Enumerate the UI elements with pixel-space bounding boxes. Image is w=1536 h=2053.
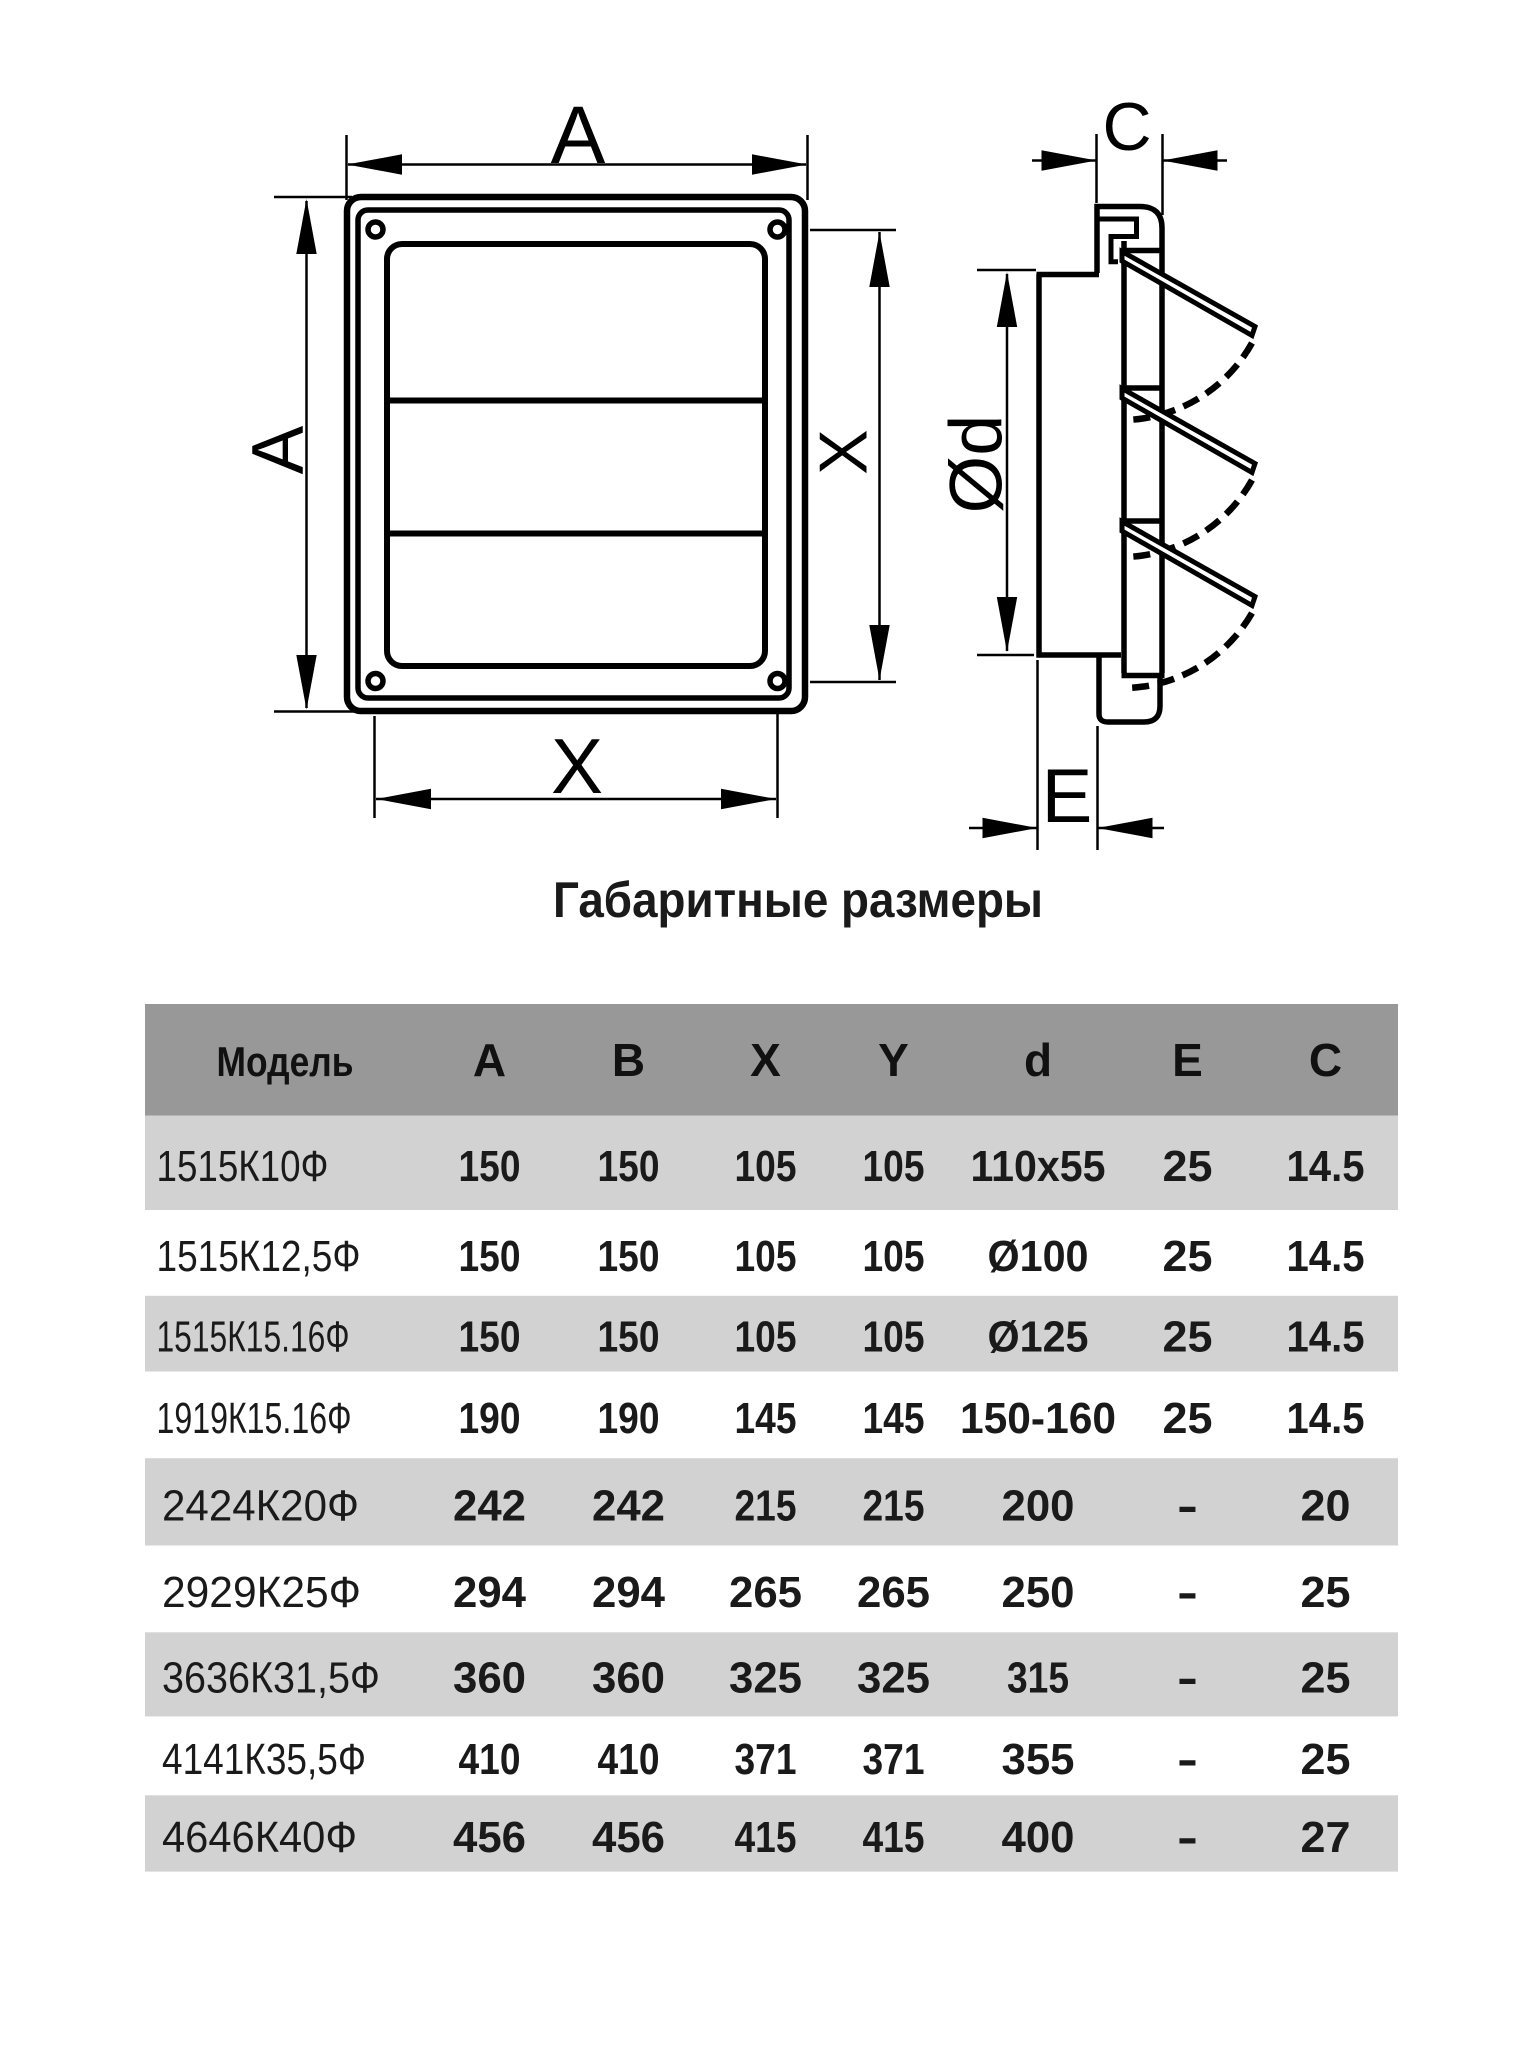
svg-text:150: 150: [598, 1232, 660, 1281]
svg-text:X: X: [806, 429, 882, 474]
svg-text:105: 105: [863, 1232, 925, 1281]
svg-text:145: 145: [863, 1394, 925, 1443]
svg-text:d: d: [1024, 1034, 1052, 1086]
svg-text:360: 360: [453, 1653, 526, 1702]
svg-text:B: B: [612, 1034, 645, 1086]
svg-text:1515К10Ф: 1515К10Ф: [157, 1142, 329, 1191]
svg-text:3636К31,5Ф: 3636К31,5Ф: [162, 1653, 380, 1702]
svg-text:456: 456: [453, 1813, 526, 1862]
svg-text:1919К15.16Ф: 1919К15.16Ф: [157, 1394, 352, 1443]
svg-text:105: 105: [735, 1232, 797, 1281]
svg-text:150: 150: [459, 1232, 521, 1281]
svg-text:400: 400: [1002, 1813, 1075, 1862]
svg-text:190: 190: [459, 1394, 521, 1443]
svg-text:415: 415: [735, 1813, 797, 1862]
svg-text:415: 415: [863, 1813, 925, 1862]
svg-text:Ø125: Ø125: [988, 1313, 1089, 1362]
svg-text:294: 294: [592, 1568, 666, 1617]
svg-text:410: 410: [598, 1735, 660, 1784]
svg-text:110x55: 110x55: [971, 1142, 1106, 1191]
svg-text:14.5: 14.5: [1287, 1142, 1365, 1191]
svg-text:14.5: 14.5: [1287, 1232, 1365, 1281]
svg-text:1515К15.16Ф: 1515К15.16Ф: [157, 1313, 350, 1362]
svg-text:A: A: [551, 90, 606, 181]
svg-text:150: 150: [459, 1313, 521, 1362]
svg-text:150: 150: [598, 1142, 660, 1191]
svg-text:E: E: [1042, 754, 1093, 839]
svg-text:-: -: [1177, 1653, 1198, 1702]
svg-text:265: 265: [729, 1568, 802, 1617]
svg-text:150: 150: [459, 1142, 521, 1191]
svg-text:14.5: 14.5: [1287, 1313, 1365, 1362]
svg-text:25: 25: [1163, 1142, 1213, 1191]
svg-text:25: 25: [1301, 1735, 1351, 1784]
svg-text:20: 20: [1301, 1481, 1351, 1530]
svg-text:A: A: [473, 1034, 506, 1086]
svg-text:X: X: [750, 1034, 781, 1086]
svg-text:355: 355: [1002, 1735, 1075, 1784]
svg-text:105: 105: [735, 1142, 797, 1191]
svg-text:315: 315: [1007, 1653, 1069, 1702]
svg-text:294: 294: [453, 1568, 527, 1617]
svg-text:371: 371: [863, 1735, 925, 1784]
svg-text:265: 265: [857, 1568, 930, 1617]
svg-text:X: X: [551, 722, 603, 810]
svg-text:410: 410: [459, 1735, 521, 1784]
svg-text:27: 27: [1301, 1813, 1351, 1862]
svg-text:250: 250: [1002, 1568, 1075, 1617]
svg-text:456: 456: [592, 1813, 665, 1862]
svg-text:A: A: [238, 425, 319, 474]
svg-text:-: -: [1177, 1813, 1198, 1862]
svg-text:25: 25: [1163, 1313, 1213, 1362]
svg-text:105: 105: [863, 1313, 925, 1362]
svg-text:4646К40Ф: 4646К40Ф: [162, 1813, 357, 1862]
svg-text:Y: Y: [878, 1034, 909, 1086]
svg-text:325: 325: [729, 1653, 802, 1702]
svg-text:-: -: [1177, 1568, 1198, 1617]
svg-text:25: 25: [1163, 1394, 1213, 1443]
svg-text:-: -: [1177, 1735, 1198, 1784]
svg-text:4141К35,5Ф: 4141К35,5Ф: [162, 1735, 366, 1784]
svg-text:E: E: [1172, 1034, 1203, 1086]
svg-text:150-160: 150-160: [960, 1394, 1116, 1443]
svg-text:360: 360: [592, 1653, 665, 1702]
svg-text:C: C: [1309, 1034, 1342, 1086]
svg-text:190: 190: [598, 1394, 660, 1443]
svg-text:105: 105: [735, 1313, 797, 1362]
svg-text:145: 145: [735, 1394, 797, 1443]
svg-text:200: 200: [1002, 1481, 1075, 1530]
svg-text:105: 105: [863, 1142, 925, 1191]
svg-text:Габаритные размеры: Габаритные размеры: [553, 872, 1043, 928]
svg-text:Ød: Ød: [935, 415, 1018, 514]
svg-text:242: 242: [453, 1481, 526, 1530]
svg-text:C: C: [1102, 89, 1151, 165]
svg-text:242: 242: [592, 1481, 665, 1530]
svg-text:325: 325: [857, 1653, 930, 1702]
svg-text:215: 215: [863, 1481, 925, 1530]
svg-text:371: 371: [735, 1735, 797, 1784]
svg-text:2929К25Ф: 2929К25Ф: [162, 1568, 361, 1617]
svg-text:25: 25: [1301, 1653, 1351, 1702]
svg-text:1515К12,5Ф: 1515К12,5Ф: [157, 1232, 361, 1281]
svg-text:25: 25: [1163, 1232, 1213, 1281]
svg-text:14.5: 14.5: [1287, 1394, 1365, 1443]
svg-text:-: -: [1177, 1481, 1198, 1530]
svg-text:25: 25: [1301, 1568, 1351, 1617]
svg-text:Модель: Модель: [217, 1038, 354, 1085]
svg-text:2424К20Ф: 2424К20Ф: [162, 1481, 359, 1530]
svg-text:150: 150: [598, 1313, 660, 1362]
svg-text:215: 215: [735, 1481, 797, 1530]
svg-text:Ø100: Ø100: [988, 1232, 1089, 1281]
